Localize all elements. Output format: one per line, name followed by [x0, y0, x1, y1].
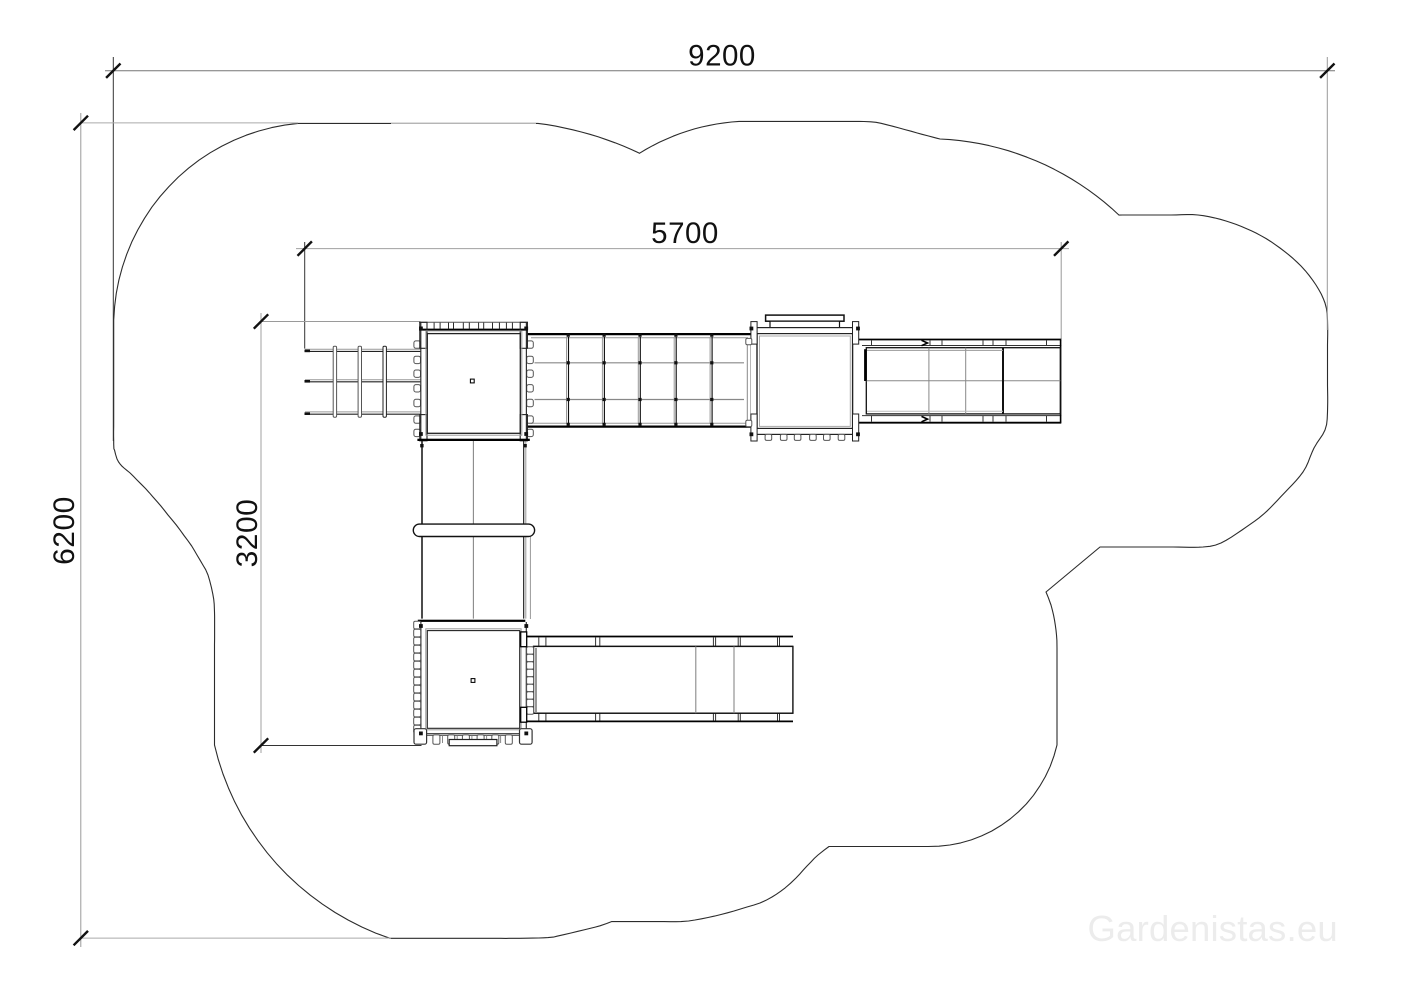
svg-text:9200: 9200	[688, 39, 756, 72]
svg-text:Gardenistas.eu: Gardenistas.eu	[1088, 908, 1338, 949]
svg-text:3200: 3200	[231, 499, 264, 568]
svg-text:5700: 5700	[651, 217, 719, 250]
svg-text:6200: 6200	[48, 496, 81, 565]
